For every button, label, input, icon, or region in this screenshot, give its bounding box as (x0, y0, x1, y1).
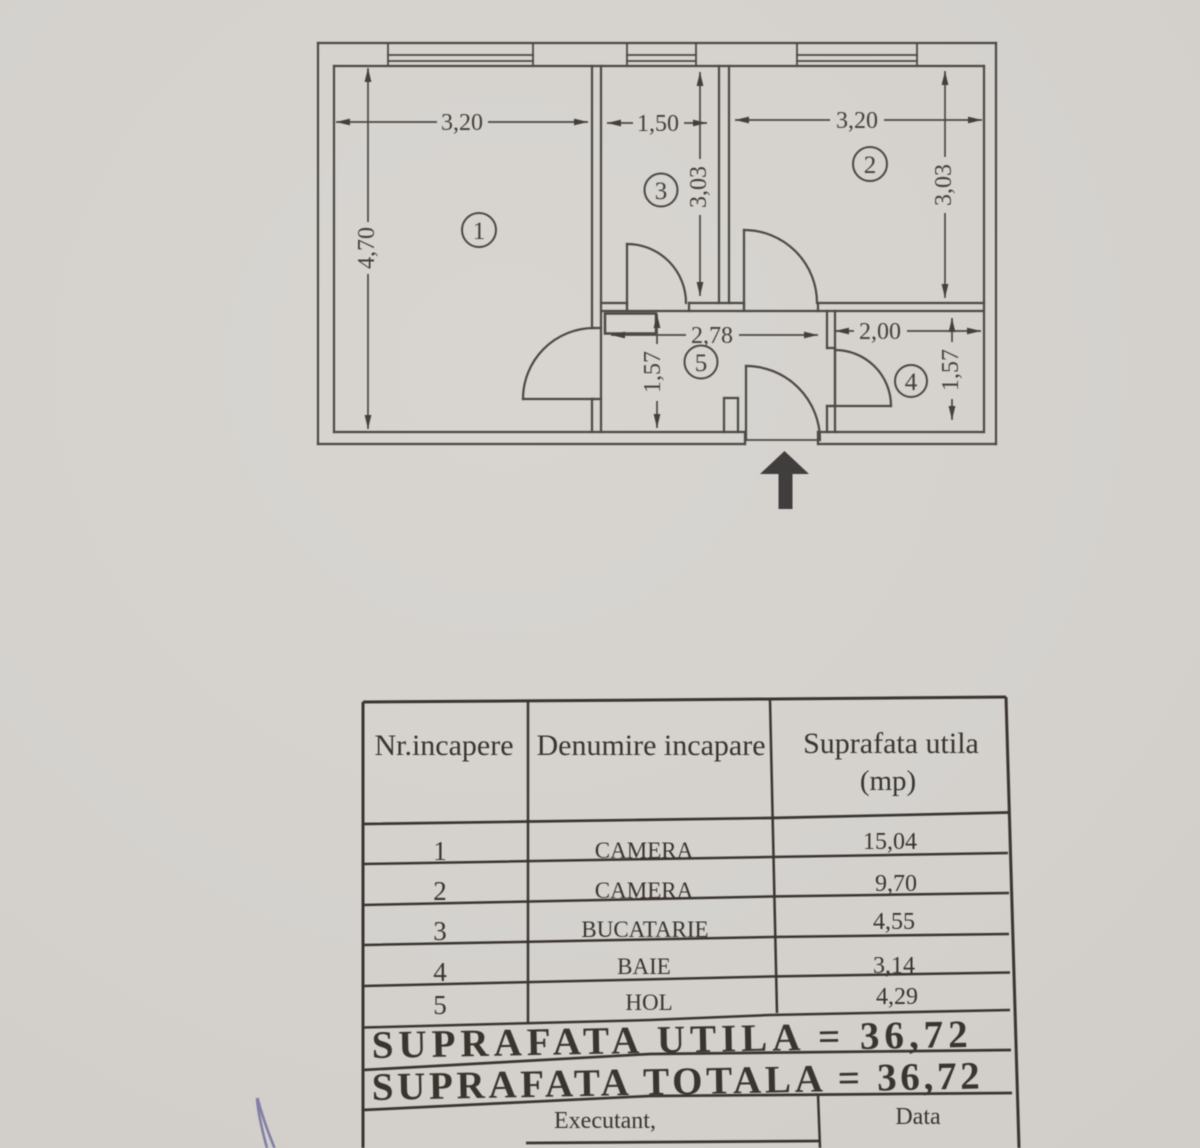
svg-text:3: 3 (433, 916, 447, 946)
svg-text:3: 3 (655, 178, 668, 205)
svg-text:4,55: 4,55 (873, 909, 915, 935)
svg-text:1: 1 (473, 218, 486, 245)
svg-text:5: 5 (695, 350, 708, 377)
svg-text:3,20: 3,20 (441, 110, 483, 136)
svg-text:15,04: 15,04 (863, 829, 917, 855)
svg-text:2: 2 (864, 152, 877, 179)
svg-text:4,29: 4,29 (876, 984, 918, 1010)
svg-text:BAIE: BAIE (617, 954, 671, 979)
svg-text:Nr.incapere: Nr.incapere (374, 729, 513, 762)
svg-text:Data: Data (895, 1104, 941, 1130)
svg-text:4,70: 4,70 (354, 227, 380, 269)
svg-text:1,57: 1,57 (938, 349, 964, 391)
svg-text:Executant,: Executant, (554, 1108, 656, 1134)
svg-text:1,50: 1,50 (637, 111, 679, 137)
svg-text:3,03: 3,03 (931, 164, 957, 206)
svg-text:1,57: 1,57 (640, 351, 666, 393)
svg-text:3,20: 3,20 (836, 108, 878, 134)
svg-text:2,00: 2,00 (859, 319, 901, 345)
svg-text:4: 4 (433, 957, 447, 987)
svg-text:9,70: 9,70 (875, 871, 917, 897)
svg-text:Suprafata utila: Suprafata utila (803, 727, 979, 760)
svg-text:3,03: 3,03 (686, 166, 712, 208)
svg-text:Denumire incapare: Denumire incapare (536, 729, 765, 762)
svg-text:HOL: HOL (625, 990, 672, 1015)
svg-text:2: 2 (433, 876, 447, 906)
svg-text:5: 5 (433, 990, 447, 1020)
svg-text:4: 4 (905, 369, 918, 396)
svg-text:(mp): (mp) (860, 765, 916, 797)
